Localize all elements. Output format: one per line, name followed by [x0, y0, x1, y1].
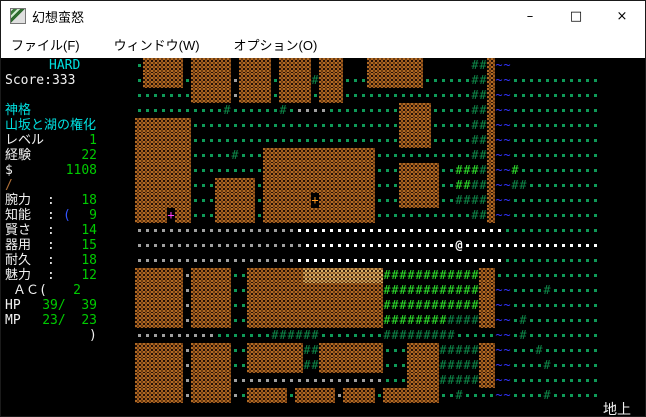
town-map[interactable]: ##~~###~~##~~####~~##~~##~~###~~####~~##…: [135, 58, 639, 403]
map-cell-tree: #: [447, 328, 455, 343]
map-cell-wall: [215, 358, 223, 373]
map-cell-wall-light: [375, 268, 383, 283]
map-cell-wall: [375, 343, 383, 358]
map-cell-floor-lit: [335, 253, 343, 268]
map-cell-tree: #: [295, 328, 303, 343]
map-cell-wall: [415, 358, 423, 373]
map-cell-floor-lit: [431, 223, 439, 238]
map-cell-floor-gray: [247, 238, 255, 253]
map-cell-wall: [159, 163, 167, 178]
score-label: Score:333: [1, 73, 135, 88]
map-cell-floor-green: [567, 253, 575, 268]
map-cell-wall: [271, 193, 279, 208]
map-cell-floor-gray: [335, 388, 343, 403]
map-cell-wall: [351, 163, 359, 178]
map-cell-floor-green: [423, 73, 431, 88]
map-cell-floor-green: [199, 163, 207, 178]
map-cell-wall: [199, 268, 207, 283]
map-cell-wall: [383, 73, 391, 88]
map-cell-empty: [623, 358, 631, 373]
map-cell-wall: [279, 298, 287, 313]
map-cell-empty: [271, 58, 279, 73]
map-cell-floor-green: [567, 298, 575, 313]
map-cell-wall: [359, 283, 367, 298]
map-cell-wall: [207, 73, 215, 88]
map-cell-floor-green: [511, 88, 519, 103]
map-cell-floor-green: [519, 298, 527, 313]
map-cell-floor-gray: [295, 238, 303, 253]
map-cell-floor-green: [263, 328, 271, 343]
map-cell-empty: [623, 238, 631, 253]
map-cell-floor-green: [583, 103, 591, 118]
map-cell-empty: [607, 88, 615, 103]
map-cell-wall: [319, 298, 327, 313]
map-cell-wall: [175, 388, 183, 403]
map-cell-wall: [367, 358, 375, 373]
map-cell-wall: [135, 163, 143, 178]
map-cell-wall: [303, 193, 311, 208]
map-cell-tree-bright: #: [455, 283, 463, 298]
map-cell-wall: [191, 58, 199, 73]
map-cell-floor-green: [383, 163, 391, 178]
map-cell-tree-bright: #: [471, 283, 479, 298]
map-cell-floor-green: [383, 208, 391, 223]
map-cell-floor-green: [551, 343, 559, 358]
map-cell-floor-gray: [215, 238, 223, 253]
map-cell-empty: [607, 358, 615, 373]
map-cell-floor-green: [511, 373, 519, 388]
map-cell-wall: [159, 193, 167, 208]
map-cell-tree-bright: #: [391, 283, 399, 298]
map-cell-empty: [615, 193, 623, 208]
map-cell-wall: [343, 388, 351, 403]
map-cell-floor-green: [375, 388, 383, 403]
map-cell-floor-green: [559, 343, 567, 358]
menu-options[interactable]: オプション(O): [224, 35, 328, 54]
map-cell-wall: [335, 358, 343, 373]
map-cell-wall: [215, 88, 223, 103]
map-cell-floor-green: [535, 133, 543, 148]
map-row: +####~~: [135, 193, 639, 208]
map-cell-wall: [135, 313, 143, 328]
map-cell-floor-green: [583, 388, 591, 403]
map-cell-empty: [607, 148, 615, 163]
map-cell-floor-green: [375, 88, 383, 103]
map-cell-wall: [327, 163, 335, 178]
map-cell-wall: [151, 58, 159, 73]
map-cell-wall: [319, 358, 327, 373]
map-cell-floor-green: [527, 163, 535, 178]
map-cell-floor-green: [535, 103, 543, 118]
map-cell-wall: [223, 193, 231, 208]
map-cell-floor-green: [535, 358, 543, 373]
map-cell-empty: [615, 73, 623, 88]
map-cell-floor-gray: [159, 328, 167, 343]
map-cell-wall-light: [367, 268, 375, 283]
map-cell-floor-gray: [151, 223, 159, 238]
map-cell-floor-green: [511, 193, 519, 208]
map-cell-wall: [423, 163, 431, 178]
map-cell-floor-green: [551, 328, 559, 343]
map-cell-empty: [623, 343, 631, 358]
map-cell-empty: [599, 268, 607, 283]
map-cell-floor-green: [559, 373, 567, 388]
map-cell-floor-green: [239, 133, 247, 148]
map-cell-floor-green: [439, 103, 447, 118]
map-cell-tree: #: [455, 313, 463, 328]
map-cell-floor-green: [279, 133, 287, 148]
map-cell-wall: [263, 388, 271, 403]
map-cell-wall: [271, 343, 279, 358]
map-cell-floor-gray: [215, 223, 223, 238]
map-cell-floor-green: [591, 343, 599, 358]
map-cell-floor-green: [575, 343, 583, 358]
map-cell-floor-green: [567, 148, 575, 163]
map-cell-floor-lit: [303, 253, 311, 268]
map-cell-wall: [367, 58, 375, 73]
map-cell-floor-green: [231, 328, 239, 343]
menu-file[interactable]: ファイル(F): [1, 35, 90, 54]
map-cell-floor-green: [247, 163, 255, 178]
weapon-symbol: /: [5, 178, 13, 193]
map-cell-empty: [447, 58, 455, 73]
map-cell-floor-green: [455, 103, 463, 118]
map-cell-floor-green: [543, 373, 551, 388]
map-cell-tree: #: [511, 178, 519, 193]
map-cell-floor-lit: [575, 238, 583, 253]
map-cell-floor-lit: [303, 223, 311, 238]
map-cell-floor-green: [135, 88, 143, 103]
map-cell-floor-green: [479, 388, 487, 403]
minimize-button[interactable]: –: [507, 1, 553, 31]
map-cell-wall: [207, 313, 215, 328]
title-bar[interactable]: 幻想蛮怒 – □ ×: [1, 1, 645, 31]
map-cell-empty: [607, 238, 615, 253]
map-cell-floor-green: [431, 133, 439, 148]
map-cell-tree-bright: #: [439, 283, 447, 298]
map-cell-floor-gray: [295, 373, 303, 388]
map-cell-floor-green: [551, 88, 559, 103]
map-cell-wall: [151, 283, 159, 298]
map-cell-wall: [367, 148, 375, 163]
map-cell-wall: [263, 178, 271, 193]
map-cell-floor-lit: [415, 238, 423, 253]
map-cell-wall: [263, 313, 271, 328]
map-cell-floor-green: [527, 388, 535, 403]
map-cell-floor-lit: [503, 238, 511, 253]
map-cell-wall: [175, 373, 183, 388]
map-cell-floor-green: [575, 133, 583, 148]
map-cell-wall: [239, 88, 247, 103]
map-cell-wall: [319, 88, 327, 103]
map-cell-wall: [479, 268, 487, 283]
map-cell-wall: [367, 283, 375, 298]
map-cell-floor-green: [415, 88, 423, 103]
map-cell-wall: [215, 268, 223, 283]
map-cell-wall: [423, 388, 431, 403]
map-cell-floor-gray: [175, 253, 183, 268]
map-cell-floor-lit: [543, 238, 551, 253]
map-cell-wall: [335, 58, 343, 73]
menu-bar: ファイル(F) ウィンドウ(W) オプション(O): [1, 31, 645, 59]
map-cell-tree-bright: #: [407, 298, 415, 313]
map-cell-floor-green: [551, 313, 559, 328]
map-cell-empty: [615, 148, 623, 163]
map-cell-wall: [255, 358, 263, 373]
map-row: ####~~#: [135, 163, 639, 178]
map-cell-floor-green: [559, 88, 567, 103]
map-cell-floor-green: [583, 88, 591, 103]
map-cell-tree-bright: #: [463, 163, 471, 178]
map-cell-floor-green: [463, 133, 471, 148]
map-cell-wall: [271, 148, 279, 163]
map-cell-floor-green: [591, 163, 599, 178]
map-cell-empty: [599, 328, 607, 343]
map-cell-floor-lit: [295, 253, 303, 268]
map-cell-empty: [527, 58, 535, 73]
map-cell-tree-bright: #: [423, 283, 431, 298]
map-cell-empty: [631, 88, 639, 103]
map-cell-tree-bright: #: [383, 298, 391, 313]
close-button[interactable]: ×: [599, 1, 645, 31]
map-cell-floor-gray: [207, 238, 215, 253]
map-cell-wall: [167, 358, 175, 373]
map-cell-floor-gray: [167, 223, 175, 238]
map-cell-tree-bright: #: [455, 178, 463, 193]
map-row: ############~~#: [135, 313, 639, 328]
map-cell-wall: [391, 58, 399, 73]
ac-row: ＡＣ( 2 ): [1, 283, 135, 298]
map-cell-empty: [439, 58, 447, 73]
map-cell-floor-green: [559, 253, 567, 268]
map-cell-floor-lit: [375, 238, 383, 253]
map-cell-floor-gray: [183, 268, 191, 283]
map-cell-floor-green: [383, 148, 391, 163]
map-cell-floor-green: [207, 178, 215, 193]
map-cell-wall: [279, 163, 287, 178]
map-cell-floor-gray: [143, 328, 151, 343]
map-cell-tree: #: [463, 373, 471, 388]
map-cell-floor-green: [439, 88, 447, 103]
map-cell-tree-bright: #: [447, 283, 455, 298]
map-cell-floor-gray: [167, 253, 175, 268]
map-cell-wall: [223, 88, 231, 103]
map-cell-wall: [151, 73, 159, 88]
map-cell-floor-gray: [207, 328, 215, 343]
map-cell-wall: [279, 343, 287, 358]
map-cell-wall: [151, 298, 159, 313]
map-cell-tree-bright: #: [415, 283, 423, 298]
map-cell-wall: [167, 388, 175, 403]
map-cell-floor-green: [559, 133, 567, 148]
map-cell-wall-light: [335, 268, 343, 283]
map-cell-empty: [623, 283, 631, 298]
map-cell-wall: [159, 358, 167, 373]
map-cell-wall: [415, 163, 423, 178]
map-cell-wall: [223, 268, 231, 283]
ability-row: 器用:15: [1, 238, 135, 253]
map-cell-wall: [335, 298, 343, 313]
map-cell-wall: [231, 193, 239, 208]
map-cell-empty: [631, 58, 639, 73]
map-cell-wall: [287, 298, 295, 313]
map-cell-floor-green: [527, 358, 535, 373]
map-cell-floor-green: [191, 133, 199, 148]
map-cell-wall: [415, 58, 423, 73]
map-cell-floor-green: [535, 208, 543, 223]
map-cell-floor-green: [391, 118, 399, 133]
map-cell-floor-lit: [439, 253, 447, 268]
map-cell-floor-green: [351, 73, 359, 88]
map-cell-empty: [511, 58, 519, 73]
map-cell-tree-bright: #: [407, 283, 415, 298]
map-cell-floor-gray: [199, 238, 207, 253]
map-cell-tree: #: [407, 328, 415, 343]
map-cell-wall: [167, 178, 175, 193]
map-cell-floor-gray: [247, 373, 255, 388]
map-cell-floor-green: [519, 88, 527, 103]
map-cell-floor-green: [551, 373, 559, 388]
map-cell-floor-green: [199, 118, 207, 133]
map-cell-wall: [247, 358, 255, 373]
map-cell-tree-bright: #: [407, 268, 415, 283]
map-cell-empty: [351, 58, 359, 73]
map-cell-floor-green: [343, 88, 351, 103]
map-cell-wall: [303, 163, 311, 178]
map-cell-floor-green: [383, 103, 391, 118]
map-cell-floor-lit: [407, 238, 415, 253]
map-cell-wall: [175, 133, 183, 148]
map-cell-empty: [615, 313, 623, 328]
map-cell-floor-green: [431, 88, 439, 103]
map-cell-wall: [327, 148, 335, 163]
map-cell-floor-green: [527, 73, 535, 88]
map-cell-wall: [207, 268, 215, 283]
map-cell-wall: [303, 58, 311, 73]
map-cell-tree: #: [519, 313, 527, 328]
map-cell-empty: [631, 73, 639, 88]
map-cell-empty: [599, 58, 607, 73]
class-label: 神格: [1, 103, 135, 118]
map-cell-wall: [175, 178, 183, 193]
map-cell-wall: [423, 193, 431, 208]
map-cell-water: ~: [495, 148, 503, 163]
map-cell-tree: #: [223, 103, 231, 118]
map-cell-floor-green: [383, 343, 391, 358]
map-cell-wall: [255, 283, 263, 298]
map-cell-wall: [319, 178, 327, 193]
map-cell-empty: [615, 358, 623, 373]
map-cell-wall: [327, 88, 335, 103]
map-cell-wall: [215, 283, 223, 298]
map-cell-wall: [367, 388, 375, 403]
map-cell-wall: [263, 358, 271, 373]
map-cell-floor-lit: [487, 223, 495, 238]
map-cell-floor-green: [559, 163, 567, 178]
map-cell-floor-green: [591, 313, 599, 328]
app-window: 幻想蛮怒 – □ × ファイル(F) ウィンドウ(W) オプション(O) HAR…: [0, 0, 646, 417]
map-cell-floor-green: [311, 133, 319, 148]
map-cell-floor-green: [543, 208, 551, 223]
map-cell-floor-green: [535, 283, 543, 298]
map-cell-tree: #: [455, 343, 463, 358]
map-cell-floor-lit: [455, 253, 463, 268]
map-cell-floor-green: [527, 208, 535, 223]
map-cell-floor-green: [391, 343, 399, 358]
map-cell-floor-green: [511, 328, 519, 343]
map-cell-floor-green: [375, 163, 383, 178]
map-cell-floor-green: [519, 163, 527, 178]
map-cell-tree-bright: #: [423, 298, 431, 313]
map-cell-wall: [191, 373, 199, 388]
map-cell-floor-green: [519, 193, 527, 208]
map-cell-wall: [343, 313, 351, 328]
map-cell-wall: [487, 268, 495, 283]
map-cell-floor-green: [231, 358, 239, 373]
map-cell-floor-green: [135, 103, 143, 118]
map-cell-wall: [367, 178, 375, 193]
map-cell-wall: [167, 193, 175, 208]
map-cell-wall: [263, 58, 271, 73]
map-cell-empty: [615, 343, 623, 358]
map-cell-floor-green: [367, 88, 375, 103]
map-cell-floor-green: [199, 133, 207, 148]
map-cell-wall: [207, 358, 215, 373]
map-cell-empty: [543, 58, 551, 73]
map-cell-floor-gray: [191, 238, 199, 253]
map-cell-floor-lit: [319, 238, 327, 253]
map-cell-floor-gray: [327, 373, 335, 388]
map-cell-water: ~: [503, 328, 511, 343]
map-cell-tree-bright: #: [463, 178, 471, 193]
map-cell-empty: [631, 283, 639, 298]
map-cell-tree: #: [479, 88, 487, 103]
menu-window[interactable]: ウィンドウ(W): [104, 35, 210, 54]
map-cell-floor-gray: [191, 253, 199, 268]
map-cell-wall: [279, 388, 287, 403]
map-cell-floor-green: [575, 148, 583, 163]
map-cell-wall: [335, 73, 343, 88]
map-cell-floor-green: [567, 223, 575, 238]
map-cell-floor-green: [551, 148, 559, 163]
map-cell-wall: [383, 388, 391, 403]
map-cell-water: ~: [495, 313, 503, 328]
map-cell-floor-green: [471, 388, 479, 403]
map-cell-wall-light: [311, 268, 319, 283]
map-cell-floor-lit: [463, 238, 471, 253]
map-cell-floor-lit: [311, 253, 319, 268]
map-cell-empty: [615, 208, 623, 223]
map-cell-empty: [631, 268, 639, 283]
map-cell-floor-gray: [135, 328, 143, 343]
map-cell-wall: [351, 193, 359, 208]
map-cell-floor-gray: [135, 238, 143, 253]
map-cell-tree: #: [471, 73, 479, 88]
map-row: ###############~~#: [135, 328, 639, 343]
map-cell-tree: #: [471, 103, 479, 118]
map-cell-floor-green: [575, 283, 583, 298]
map-cell-floor-green: [239, 388, 247, 403]
map-cell-floor-gray: [167, 238, 175, 253]
map-cell-wall: [311, 148, 319, 163]
maximize-button[interactable]: □: [553, 1, 599, 31]
map-cell-wall: [151, 313, 159, 328]
ability-row: 魅力:12: [1, 268, 135, 283]
map-cell-floor-green: [359, 133, 367, 148]
map-cell-empty: [607, 343, 615, 358]
map-cell-wall: [287, 268, 295, 283]
map-cell-wall: [279, 178, 287, 193]
